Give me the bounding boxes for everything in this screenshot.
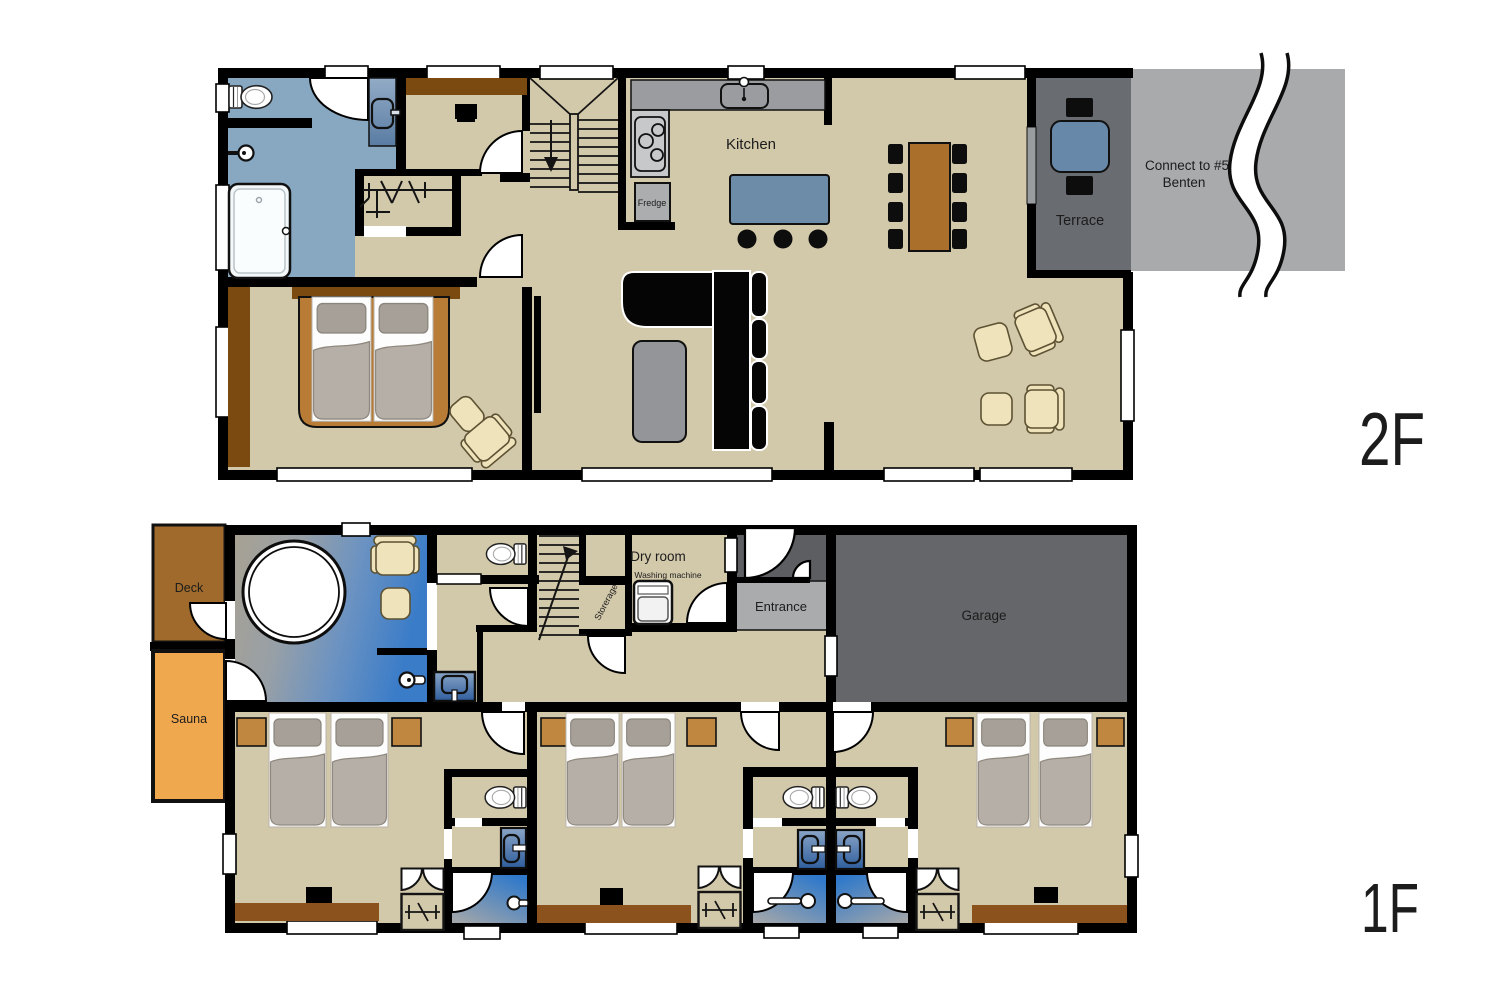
svg-text:Garage: Garage xyxy=(961,608,1006,623)
svg-text:Deck: Deck xyxy=(175,581,204,595)
svg-text:1F: 1F xyxy=(1361,869,1419,947)
svg-text:2F: 2F xyxy=(1359,397,1425,481)
svg-text:Sauna: Sauna xyxy=(171,712,207,726)
svg-text:Fredge: Fredge xyxy=(638,198,667,208)
svg-text:Washing machine: Washing machine xyxy=(634,570,702,580)
svg-text:Dry room: Dry room xyxy=(630,549,686,564)
svg-text:Entrance: Entrance xyxy=(755,599,807,614)
svg-text:Connect to #5: Connect to #5 xyxy=(1145,158,1229,173)
svg-text:Benten: Benten xyxy=(1163,175,1206,190)
svg-text:Kitchen: Kitchen xyxy=(726,136,776,153)
svg-text:Terrace: Terrace xyxy=(1056,213,1104,229)
